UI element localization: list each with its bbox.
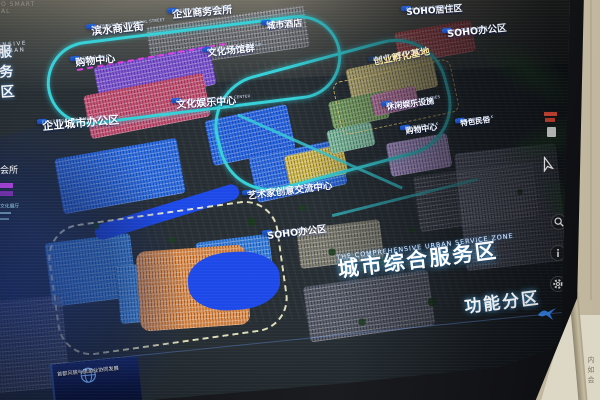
info-icon <box>553 248 563 258</box>
map-red-sign-2 <box>545 118 555 122</box>
zone-label-artist-exchange: 艺术家创意交流中心 CREATIVE ARTIST EXCHANGE CENTE… <box>242 189 253 195</box>
zone-label-culture-entertainment: 文化娱乐中心 CULTURAL ENTERTAINMENT CENTER <box>171 98 181 104</box>
zone-label-enterprise-office: 企业城市办公区 ENTERPRISE CITY OFFICE AREA <box>37 119 47 125</box>
zone-label-leisure-facilities: 休闲娱乐设施 RECREATIONAL FACILITIES <box>381 100 392 106</box>
photo-of-kiosk-screen: 内如会 <box>0 0 600 400</box>
nav-tile-capital-tourism[interactable]: 首都风貌与旅游业协同发展 <box>50 358 127 400</box>
legend-swatch-violet <box>0 191 13 196</box>
zone-label-waterfront-street: 滨水商业街 WATERFRONT COMMERCIAL STREET <box>86 23 96 29</box>
cutoff-heading-fragment: O SMART AL <box>1 1 35 15</box>
grid-dots-icon[interactable] <box>546 88 559 101</box>
legend-swatch-purple <box>0 183 13 188</box>
zone-label-business-club: 企业商务会所 ENTERPRISE BUSINESS CLUB <box>167 8 177 14</box>
zone-label-incubator-base: 创业孵化基地 BUSINESS INCUBATORS <box>368 55 379 62</box>
legend-fragment-club: 会所 <box>0 163 18 176</box>
zone-label-featured-folk: 特色民俗 FEATURED FOLK <box>455 117 466 123</box>
legend-bar-1 <box>0 212 11 214</box>
legend-bar-2 <box>0 218 9 220</box>
zone-label-shopping-center-1: 购物中心 FEATURED FOLK <box>70 55 80 61</box>
cutoff-zone-title-en: ENSIVE URBAN <box>0 40 28 55</box>
kiosk-screen: O SMART AL 服务区 ENSIVE URBAN 会所 文化展厅 滨水商业… <box>0 0 600 400</box>
zone-label-city-hotel: 城市酒店 CITY HOTEL <box>261 20 271 26</box>
legend-fragment-text: 文化展厅 <box>0 202 19 209</box>
zone-label-soho-office-bottom: SOHO办公区 SOHO OFFICE AREA <box>262 229 273 235</box>
zone-label-shopping-center-2: 购物中心 FEATURED FOLK <box>400 124 411 130</box>
gear-icon <box>552 278 564 290</box>
fragment-line1: O SMART <box>1 1 35 8</box>
map-red-sign-1 <box>544 112 557 116</box>
zone-label-soho-residential: SOHO居住区 SOHO RESIDENTIAL AREA <box>401 6 411 12</box>
fragment-line2: AL <box>1 8 35 15</box>
wall-seam <box>590 0 592 300</box>
zone-label-soho-office-top: SOHO办公区 SOHO OFFICE AREA <box>442 27 452 33</box>
zoom-icon <box>553 216 565 228</box>
map-white-sign <box>547 127 556 137</box>
wall-vertical-sign: 内如会 <box>586 356 596 386</box>
zone-label-cultural-venues: 文化场馆群 CULTURAL VENUES GROUP <box>202 46 212 52</box>
